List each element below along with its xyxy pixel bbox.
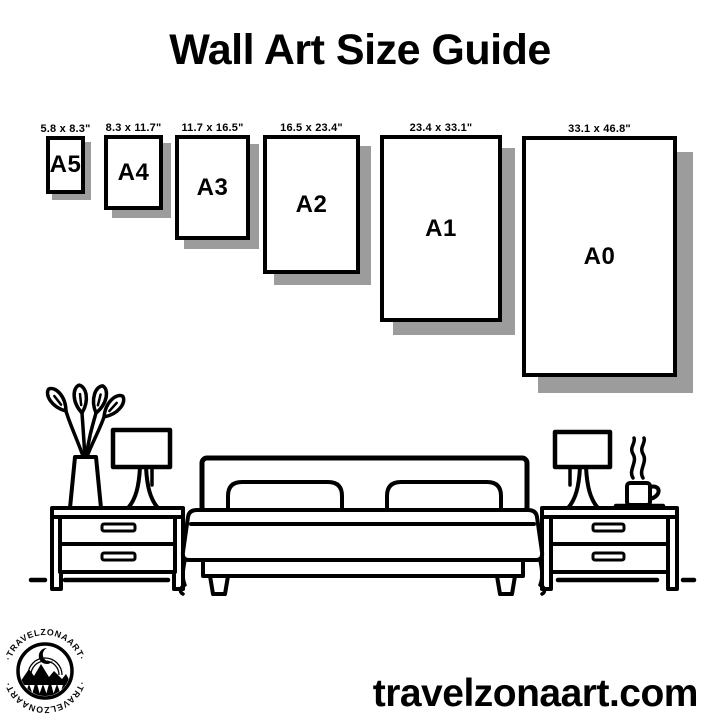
size-frame: 16.5 x 23.4" A2 (263, 135, 360, 274)
frame-dimensions-label: 8.3 x 11.7" (106, 122, 162, 134)
coffee-cup-icon (616, 438, 663, 506)
frame-size-name: A2 (296, 191, 328, 219)
brand-logo-badge: ·TRAVELZONAART· ·TRAVELZONAART· (0, 625, 90, 717)
frame-dimensions-label: 11.7 x 16.5" (181, 122, 243, 134)
frame-dimensions-label: 33.1 x 46.8" (568, 123, 631, 135)
table-lamp-right-icon (555, 432, 610, 508)
size-frame: 11.7 x 16.5" A3 (175, 135, 250, 240)
size-guide-poster: Wall Art Size Guide 5.8 x 8.3" A5 8.3 x … (0, 0, 720, 720)
frame-size-name: A5 (50, 151, 82, 179)
size-frame: 33.1 x 46.8" A0 (522, 136, 677, 377)
frame-dimensions-label: 23.4 x 33.1" (410, 122, 473, 134)
frame-size-name: A0 (584, 243, 616, 271)
table-lamp-left-icon (113, 430, 170, 508)
size-frames-row: 5.8 x 8.3" A5 8.3 x 11.7" A4 11.7 x 16.5… (0, 0, 720, 400)
frame-size-name: A1 (425, 215, 457, 243)
bedroom-illustration (0, 383, 720, 613)
website-url: travelzonaart.com (373, 672, 698, 716)
frame-size-name: A4 (118, 159, 150, 187)
frame-size-name: A3 (197, 174, 229, 202)
size-frame: 5.8 x 8.3" A5 (46, 136, 85, 194)
bed-icon (181, 458, 545, 594)
frame-dimensions-label: 16.5 x 23.4" (280, 122, 343, 134)
size-frame: 23.4 x 33.1" A1 (380, 135, 502, 322)
nightstand-left-icon (52, 508, 183, 589)
nightstand-right-icon (542, 508, 677, 589)
size-frame: 8.3 x 11.7" A4 (104, 135, 163, 210)
frame-dimensions-label: 5.8 x 8.3" (40, 123, 90, 135)
